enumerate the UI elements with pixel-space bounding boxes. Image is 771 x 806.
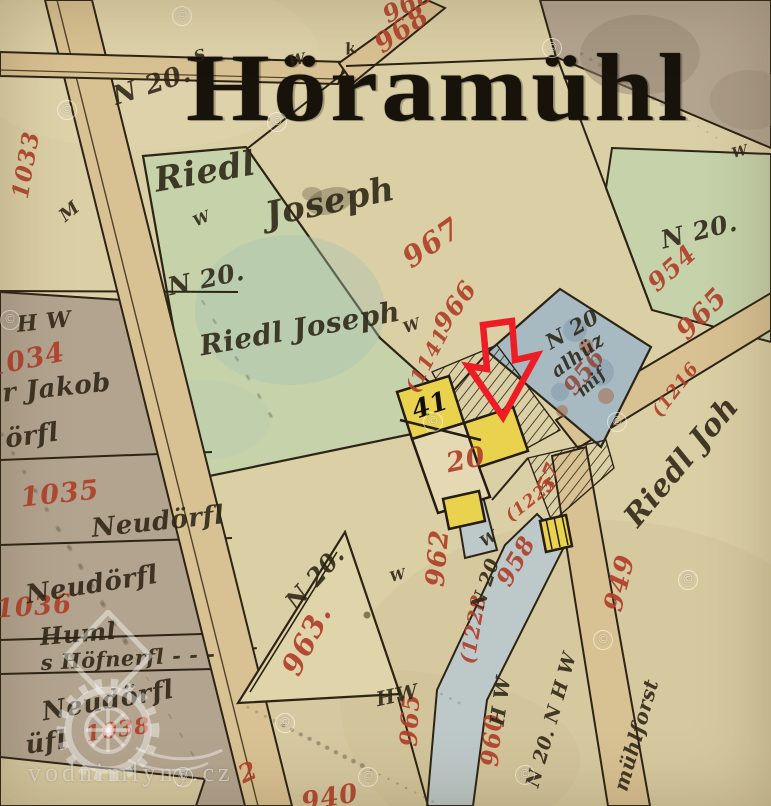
outbuilding-hatched — [540, 515, 572, 552]
outbuilding-south — [443, 491, 485, 529]
historic-cadastral-map: Höramühl 9689681033967966(1141956954965(… — [0, 0, 771, 806]
page-title: Höramühl — [186, 40, 691, 136]
